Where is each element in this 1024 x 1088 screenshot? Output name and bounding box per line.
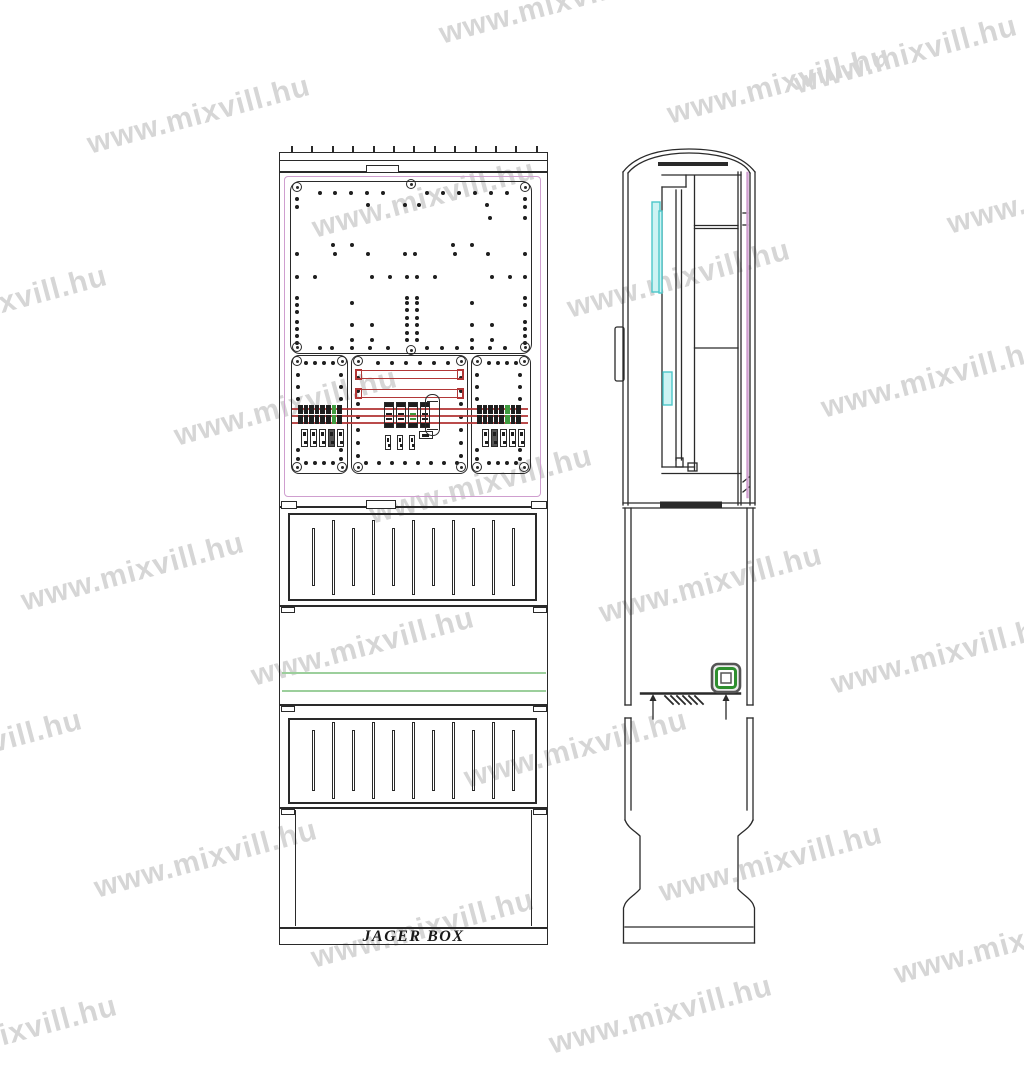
vent-slot bbox=[452, 722, 455, 799]
roof-tick bbox=[413, 146, 415, 153]
terminal-cell bbox=[304, 415, 309, 424]
fuse-base bbox=[518, 429, 525, 447]
vent-slot bbox=[512, 528, 515, 586]
tab bbox=[281, 809, 295, 815]
terminal-cell bbox=[483, 405, 488, 414]
ground-arrow-right bbox=[723, 694, 730, 719]
vent-slot bbox=[512, 730, 515, 791]
roof-tick bbox=[475, 146, 477, 153]
roof-tick bbox=[352, 146, 354, 153]
seal-line bbox=[282, 672, 546, 674]
roof-tick bbox=[515, 146, 517, 153]
watermark-text: www.mixvill.hu bbox=[546, 969, 777, 1061]
terminal-cell bbox=[320, 415, 325, 424]
corner-screw bbox=[292, 462, 302, 472]
vent-slot bbox=[492, 520, 495, 595]
corner-screw bbox=[353, 462, 363, 472]
base-inner-line bbox=[295, 810, 296, 926]
terminal-cell bbox=[332, 415, 337, 424]
fuse-base bbox=[409, 435, 415, 450]
vent-slot bbox=[332, 520, 335, 595]
vent-slot bbox=[432, 528, 435, 586]
fuse-base bbox=[509, 429, 516, 447]
terminal-cell bbox=[505, 415, 510, 424]
base-flange bbox=[623, 502, 755, 509]
din-module bbox=[396, 402, 406, 428]
terminal-cell bbox=[332, 405, 337, 414]
roof-tick bbox=[311, 146, 313, 153]
mounting-plate bbox=[290, 181, 532, 354]
side-roof bbox=[623, 149, 755, 173]
tab bbox=[281, 706, 295, 712]
din-module bbox=[384, 402, 394, 428]
terminal-cell bbox=[494, 415, 499, 424]
watermark-text: www.mixvill.hu bbox=[0, 259, 111, 351]
terminal-cell bbox=[488, 415, 493, 424]
section-base bbox=[279, 808, 548, 928]
vent-slot bbox=[372, 520, 375, 595]
watermark-text: www.mixvill.hu bbox=[944, 149, 1024, 241]
watermark-text: www.mixvill.hu bbox=[436, 0, 667, 51]
side-view bbox=[605, 145, 765, 950]
terminal-cell bbox=[309, 415, 314, 424]
vent-slot bbox=[432, 730, 435, 791]
corner-screw bbox=[406, 179, 416, 189]
lock-icon bbox=[712, 664, 740, 692]
roof-tick bbox=[536, 146, 538, 153]
foundation-profile bbox=[624, 820, 755, 943]
busbar-endcap bbox=[457, 388, 464, 399]
corner-screw bbox=[519, 356, 529, 366]
vent-slot bbox=[392, 730, 395, 791]
seal-line bbox=[282, 690, 546, 692]
tab bbox=[281, 607, 295, 613]
fuse-base bbox=[500, 429, 507, 447]
corner-screw bbox=[292, 182, 302, 192]
terminal-cell bbox=[304, 405, 309, 414]
vent-slot bbox=[312, 730, 315, 791]
corner-screw bbox=[472, 462, 482, 472]
roof-band bbox=[279, 152, 548, 172]
terminal-cell bbox=[320, 405, 325, 414]
corner-screw bbox=[292, 356, 302, 366]
tab bbox=[533, 706, 547, 712]
fuse-base bbox=[491, 429, 498, 447]
corner-screw bbox=[292, 342, 302, 352]
vent-slot bbox=[472, 730, 475, 791]
din-module bbox=[408, 402, 418, 428]
terminal-cell bbox=[511, 415, 516, 424]
corner-screw bbox=[353, 356, 363, 366]
vent-slot bbox=[412, 520, 415, 595]
corner-screw bbox=[456, 462, 466, 472]
terminal-cell bbox=[494, 405, 499, 414]
side-upper-walls bbox=[623, 172, 755, 505]
ground-arrow-left bbox=[650, 694, 657, 719]
terminal-cell bbox=[516, 405, 521, 414]
watermark-text: www.mixvill.hu bbox=[84, 69, 315, 161]
vent-slot bbox=[492, 722, 495, 799]
corner-screw bbox=[520, 182, 530, 192]
watermark-text: www.mixvill.hu bbox=[818, 333, 1024, 425]
roof-tick bbox=[332, 146, 334, 153]
vent-slot bbox=[352, 730, 355, 791]
corner-screw bbox=[456, 356, 466, 366]
corner-screw bbox=[337, 356, 347, 366]
roof-tick bbox=[495, 146, 497, 153]
tab bbox=[281, 501, 297, 509]
watermark-text: www.mixvill.hu bbox=[0, 703, 86, 795]
center-tab bbox=[366, 500, 396, 509]
base-inner-line bbox=[531, 810, 532, 926]
terminal-cell bbox=[326, 405, 331, 414]
terminal-cell bbox=[511, 405, 516, 414]
roof-tick bbox=[393, 146, 395, 153]
terminal-cell bbox=[483, 415, 488, 424]
terminal-cell bbox=[505, 405, 510, 414]
tab bbox=[531, 501, 547, 509]
busbar-frame bbox=[356, 370, 463, 379]
roof-tick bbox=[373, 146, 375, 153]
fuse-base bbox=[397, 435, 403, 450]
corner-screw bbox=[406, 345, 416, 355]
fuse-base bbox=[301, 429, 308, 447]
terminal-cell bbox=[315, 405, 320, 414]
small-device-box bbox=[419, 431, 433, 439]
terminal-cell bbox=[337, 405, 342, 414]
corner-screw bbox=[520, 342, 530, 352]
terminal-cell bbox=[326, 415, 331, 424]
label-strip: JAGER BOX bbox=[279, 928, 548, 945]
fuse-base bbox=[310, 429, 317, 447]
fuse-base bbox=[328, 429, 335, 447]
watermark-text: www.mixvill.hu bbox=[828, 609, 1024, 701]
terminal-cell bbox=[477, 415, 482, 424]
terminal-cell bbox=[309, 405, 314, 414]
roof-tick bbox=[291, 146, 293, 153]
watermark-text: www.mixvill.hu bbox=[18, 526, 249, 618]
fuse-base bbox=[385, 435, 391, 450]
tab bbox=[533, 809, 547, 815]
terminal-cell bbox=[298, 415, 303, 424]
vent-slot bbox=[392, 528, 395, 586]
side-interior-boards bbox=[662, 172, 749, 505]
terminal-cell bbox=[315, 415, 320, 424]
tab bbox=[533, 607, 547, 613]
vent-slot bbox=[332, 722, 335, 799]
terminal-cell bbox=[488, 405, 493, 414]
corner-screw bbox=[519, 462, 529, 472]
corner-screw bbox=[337, 462, 347, 472]
roof-tick bbox=[434, 146, 436, 153]
cylindrical-element bbox=[425, 394, 440, 436]
busbar-endcap bbox=[355, 388, 362, 399]
terminal-cell bbox=[499, 405, 504, 414]
corner-screw bbox=[472, 356, 482, 366]
terminal-cell bbox=[337, 415, 342, 424]
busbar-endcap bbox=[355, 369, 362, 380]
vent-slot bbox=[452, 520, 455, 595]
busbar-frame bbox=[356, 389, 463, 398]
terminal-cell bbox=[298, 405, 303, 414]
vent-slot bbox=[472, 528, 475, 586]
vent-slot bbox=[352, 528, 355, 586]
busbar-endcap bbox=[457, 369, 464, 380]
watermark-text: www.mixvill.hu bbox=[891, 899, 1024, 991]
vent-slot bbox=[372, 722, 375, 799]
terminal-cell bbox=[477, 405, 482, 414]
fuse-base bbox=[337, 429, 344, 447]
drawing-canvas: www.mixvill.huwww.mixvill.huwww.mixvill.… bbox=[0, 0, 1024, 1088]
fuse-base bbox=[482, 429, 489, 447]
terminal-cell bbox=[499, 415, 504, 424]
terminal-cell bbox=[516, 415, 521, 424]
vent-slot bbox=[412, 722, 415, 799]
roof-tick bbox=[454, 146, 456, 153]
roof-inner-line bbox=[280, 160, 547, 161]
product-label: JAGER BOX bbox=[363, 928, 465, 946]
vent-slot bbox=[312, 528, 315, 586]
fuse-base bbox=[319, 429, 326, 447]
watermark-text: www.mixvill.hu bbox=[0, 989, 121, 1081]
